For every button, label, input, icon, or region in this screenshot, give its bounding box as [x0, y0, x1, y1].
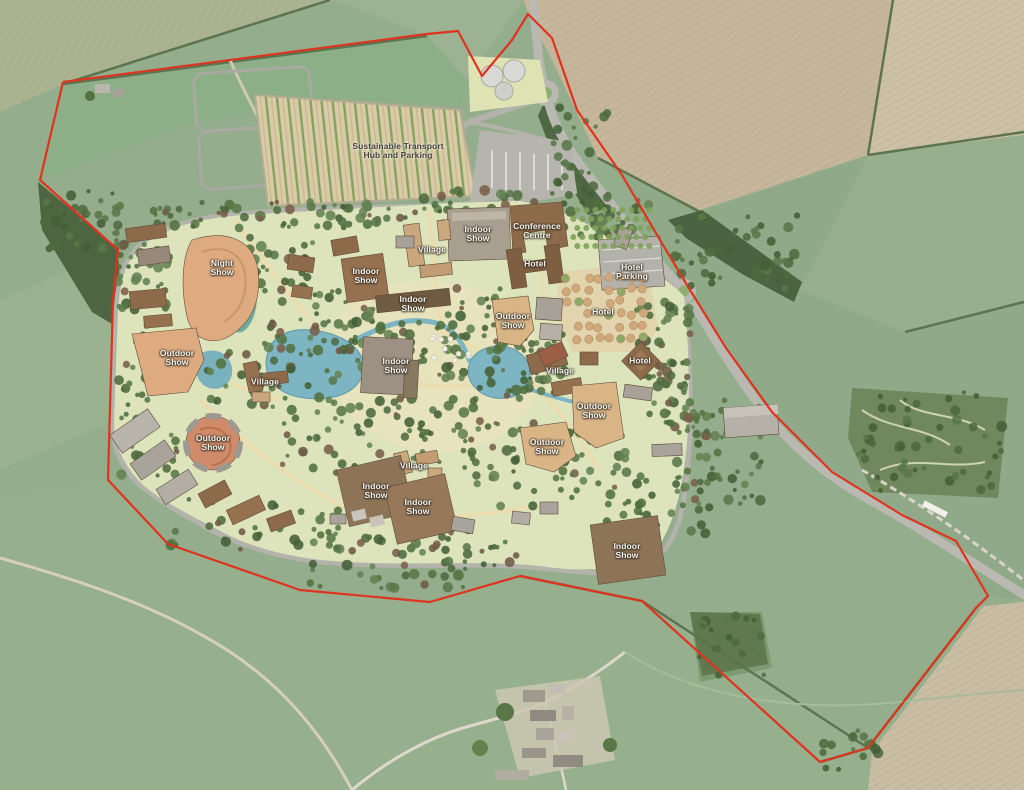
- outdoor-show-arena: [186, 416, 240, 470]
- aerial-map-canvas: [0, 0, 1024, 790]
- indoor-show-7-building: [590, 516, 666, 585]
- car-park: [255, 95, 476, 206]
- masterplan-map: Sustainable Transport Hub and Parking Ni…: [0, 0, 1024, 790]
